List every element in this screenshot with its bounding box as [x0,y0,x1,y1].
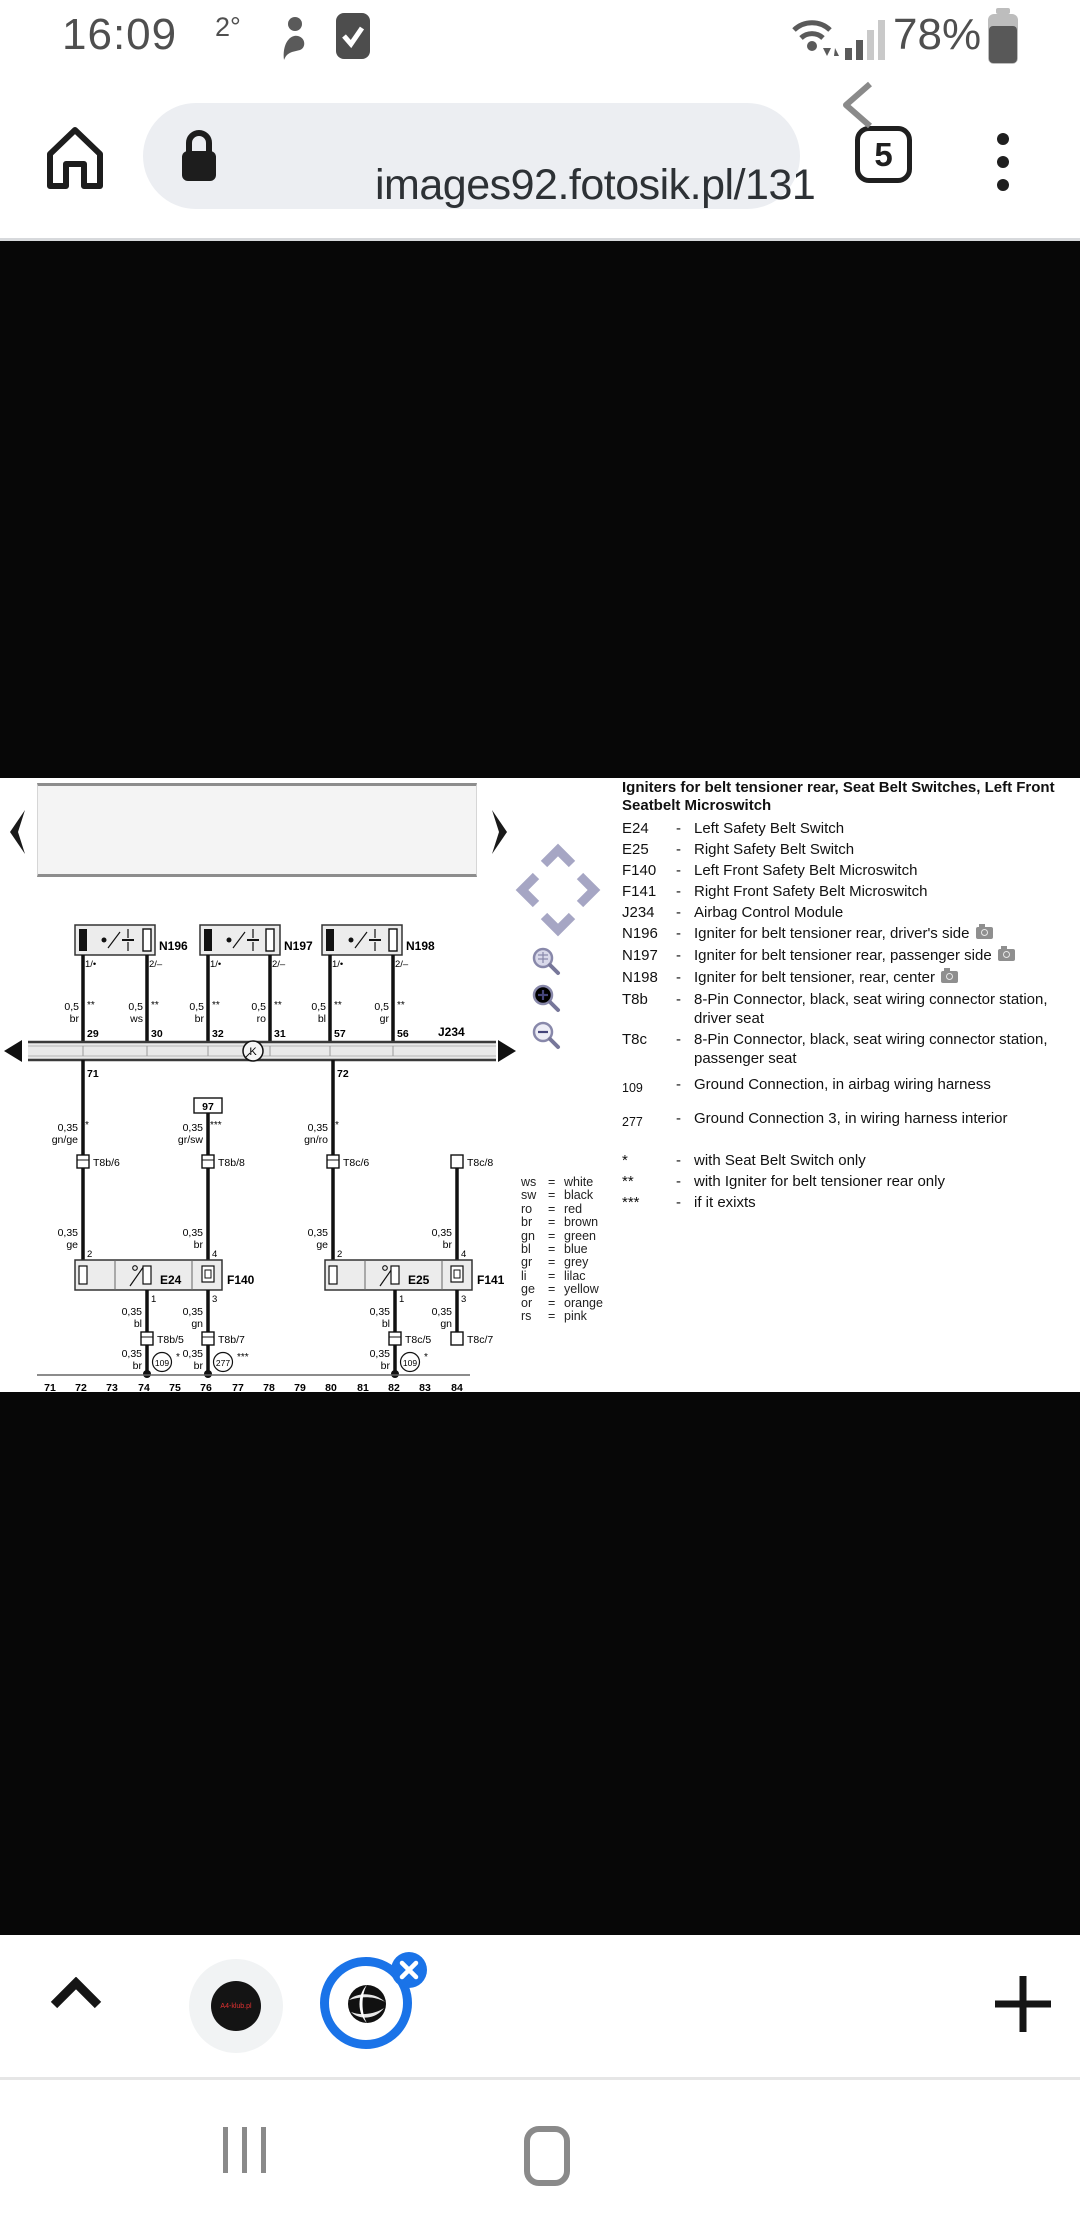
component-code: T8b [622,990,676,1028]
legend-item: N198-Igniter for belt tensioner, rear, c… [622,968,1080,987]
webpage-content: N196 1/• 2/– 0,5 ** br 29 0,5 ** ws 30 N… [0,778,1080,1392]
wire-note-label: ** [397,1000,405,1011]
wire-note-label: * [335,1120,339,1131]
component-code: F140 [622,861,676,880]
wire-size-label: 0,35 [370,1306,391,1318]
pin-label: 4 [212,1249,217,1260]
igniter-n198: N198 1/• 2/– 0,5 ** bl 57 0,5 ** gr 56 [311,925,435,1042]
connector-label: T8b/7 [218,1334,245,1346]
component-code: N197 [622,946,676,965]
home-nav-button[interactable] [524,2126,570,2186]
pin-label: 2/– [272,959,286,970]
wire-size-label: 0,35 [432,1306,453,1318]
connector-label: T8b/5 [157,1334,184,1346]
pin-label: 2 [337,1249,342,1260]
wire-color-label: gn [191,1318,203,1330]
wire-size-label: 0,35 [308,1122,329,1134]
bus-pin-label: 30 [151,1028,163,1040]
ground-label: 277 [216,1358,230,1368]
pan-right-button[interactable] [580,876,594,904]
active-site-bubble[interactable] [320,1957,412,2049]
connector-label: T8b/6 [93,1157,120,1169]
wire-color-label: br [194,1360,204,1372]
wire-color-row: ge=yellow [521,1283,603,1296]
gallery-prev-arrow[interactable] [8,810,26,854]
component-desc: Left Front Safety Belt Microswitch [694,862,917,879]
wire-size-label: 0,5 [311,1001,326,1013]
igniter-n196: N196 1/• 2/– 0,5 ** br 29 0,5 ** ws 30 [64,925,188,1042]
igniter-n197: N197 1/• 2/– 0,5 ** br 32 0,5 ** ro 31 [189,925,313,1042]
wire-color-label: gn/ge [52,1134,78,1146]
component-label: N197 [284,939,313,953]
menu-dot [997,179,1009,191]
wire-color-label: bl [382,1318,390,1330]
wire-size-label: 0,5 [128,1001,143,1013]
pin-label: 1/• [210,959,221,970]
pin-label: 1 [399,1294,404,1305]
wire-note-label: * [85,1120,89,1131]
wire-color-label: br [381,1360,391,1372]
wire-color-label: ws [129,1013,143,1025]
connector-label: T8b/8 [218,1157,245,1169]
footnote-symbol: ** [622,1172,676,1191]
globe-icon [347,1984,387,2024]
legend-item: N196-Igniter for belt tensioner rear, dr… [622,924,1080,943]
url-bar[interactable]: images92.fotosik.pl/131 [143,103,800,209]
wire-color-label: br [133,1360,143,1372]
connector-label: T8c/7 [467,1334,493,1346]
signal-bars-icon [845,10,889,60]
wire-size-label: 0,35 [183,1227,204,1239]
pin-label: 1/• [85,959,96,970]
footnote-desc: with Igniter for belt tensioner rear onl… [694,1173,945,1190]
tab-switcher-button[interactable]: 5 [855,126,912,183]
legend-item: *-with Seat Belt Switch only [622,1151,1080,1170]
diagram-legend: Igniters for belt tensioner rear, Seat B… [622,779,1080,1214]
camera-icon[interactable] [998,949,1015,961]
component-code: E25 [622,840,676,859]
system-navigation-bar [0,2080,1080,2220]
component-desc: Right Safety Belt Switch [694,841,854,858]
page-background-bottom [0,1392,1080,1935]
pin-label: 3 [461,1294,466,1305]
menu-dot [997,133,1009,145]
ground-label: 109 [403,1358,417,1368]
wire-size-label: 0,35 [122,1348,143,1360]
wire-color-row: br=brown [521,1216,603,1229]
wifi-icon [790,12,842,60]
wire-note-label: ** [274,1000,282,1011]
component-label: F140 [227,1273,255,1287]
k-symbol-label: K [249,1046,257,1058]
bus-pin-label: 29 [87,1028,99,1040]
back-button[interactable] [838,81,876,129]
recent-site-bubble[interactable]: A4-klub.pl [189,1959,283,2053]
wire-color-label: br [195,1013,205,1025]
temperature: 2° [215,12,241,43]
wire-size-label: 0,5 [64,1001,79,1013]
camera-icon[interactable] [941,971,958,983]
component-desc: Left Safety Belt Switch [694,820,844,837]
wire-note-label: * [176,1352,180,1363]
recents-button[interactable] [223,2127,280,2178]
wire-size-label: 0,35 [183,1306,204,1318]
wire-note-label: *** [237,1352,249,1363]
component-code: J234 [622,903,676,922]
wire-color-label: ge [66,1239,78,1251]
switch-unit-e25-f141: 0,35 ge 2 0,35 br 4 E25 F141 1 0,35 bl T… [308,1227,505,1378]
connector-label: T8c/8 [467,1157,493,1169]
camera-icon[interactable] [976,927,993,939]
page-background-top [0,241,1080,778]
legend-item: T8c-8-Pin Connector, black, seat wiring … [622,1030,1080,1068]
component-code: 277 [622,1109,676,1132]
switch-unit-e24-f140: 0,35 ge 2 0,35 br 4 E24 F140 1 0,35 bl T… [58,1227,255,1378]
control-module-bus: K J234 71 72 [4,1025,516,1080]
legend-item: N197-Igniter for belt tensioner rear, pa… [622,946,1080,965]
wiring-diagram-image: N196 1/• 2/– 0,5 ** br 29 0,5 ** ws 30 N… [0,895,520,1395]
wire-color-row: gn=green [521,1230,603,1243]
wire-note-label: ** [334,1000,342,1011]
bus-pin-label: 57 [334,1028,346,1040]
wire-color-label: bl [134,1318,142,1330]
component-code: 109 [622,1075,676,1098]
wire-color-label: br [70,1013,80,1025]
legend-item: F141-Right Front Safety Belt Microswitch [622,882,1080,901]
wire-color-row: li=lilac [521,1270,603,1283]
pan-up-button[interactable] [544,850,572,864]
component-desc: Right Front Safety Belt Microswitch [694,883,927,900]
wire-size-label: 0,5 [374,1001,389,1013]
wire-color-row: bl=blue [521,1243,603,1256]
pin-label: 2/– [395,959,409,970]
wire-size-label: 0,35 [183,1348,204,1360]
component-desc: Ground Connection 3, in wiring harness i… [694,1110,1008,1127]
legend-item: 109-Ground Connection, in airbag wiring … [622,1075,1080,1098]
component-code: N196 [622,924,676,943]
wire-color-row: sw=black [521,1189,603,1202]
wire-color-row: ws=white [521,1176,603,1189]
legend-item: **-with Igniter for belt tensioner rear … [622,1172,1080,1191]
zoom-in-button[interactable] [534,986,558,1010]
component-label: F141 [477,1273,505,1287]
browser-toolbar: images92.fotosik.pl/131 5 [0,70,1080,238]
component-label: E25 [408,1273,430,1287]
image-viewer-tools [500,830,640,1060]
legend-item: F140-Left Front Safety Belt Microswitch [622,861,1080,880]
wire-size-label: 0,35 [308,1227,329,1239]
wire-size-label: 0,35 [122,1306,143,1318]
checkbox-notification-icon [335,12,371,60]
legend-title: Igniters for belt tensioner rear, Seat B… [622,779,1080,815]
ground-label: 109 [155,1358,169,1368]
battery-percent: 78% [893,10,981,60]
wire-size-label: 0,35 [58,1227,79,1239]
wire-color-label: bl [318,1013,326,1025]
bus-pin-label: 72 [337,1068,349,1080]
component-code: T8c [622,1030,676,1068]
wire-size-label: 0,35 [370,1348,391,1360]
legend-item: E25-Right Safety Belt Switch [622,840,1080,859]
component-desc: 8-Pin Connector, black, seat wiring conn… [694,991,1048,1027]
footnote-desc: with Seat Belt Switch only [694,1152,866,1169]
browser-bottom-sheet: A4-klub.pl [0,1935,1080,2077]
bus-pin-label: 31 [274,1028,286,1040]
wire-size-label: 0,35 [183,1122,204,1134]
component-code: N198 [622,968,676,987]
component-code: F141 [622,882,676,901]
close-tab-badge[interactable] [391,1952,427,1988]
home-button[interactable] [44,124,106,192]
wire-note-label: *** [210,1120,222,1131]
component-code: E24 [622,819,676,838]
pin-label: 3 [212,1294,217,1305]
wire-color-label: br [194,1239,204,1251]
component-desc: Igniter for belt tensioner rear, driver'… [694,925,970,942]
code-97-label: 97 [202,1101,214,1113]
wire-size-label: 0,35 [432,1227,453,1239]
browser-menu-button[interactable] [997,122,1009,202]
url-text: images92.fotosik.pl/131 [375,161,815,210]
new-tab-button[interactable] [993,1974,1053,2034]
empty-thumbnail-strip [37,783,477,877]
wire-color-label: gr [380,1013,390,1025]
bus-pin-label: 56 [397,1028,409,1040]
zoom-out-button[interactable] [534,1023,558,1047]
wire-color-label: ro [257,1013,266,1025]
pin-label: 2 [87,1249,92,1260]
legend-item: T8b-8-Pin Connector, black, seat wiring … [622,990,1080,1028]
component-desc: Ground Connection, in airbag wiring harn… [694,1076,991,1093]
legend-item: E24-Left Safety Belt Switch [622,819,1080,838]
pin-label: 4 [461,1249,466,1260]
wire-color-label: ge [316,1239,328,1251]
clock: 16:09 [62,10,177,60]
wire-note-label: * [424,1352,428,1363]
close-icon [399,1960,419,1980]
connector-label: T8c/6 [343,1157,369,1169]
wire-note-label: ** [151,1000,159,1011]
expand-sheet-button[interactable] [46,1977,106,2009]
wire-color-row: or=orange [521,1297,603,1310]
site-favicon: A4-klub.pl [211,1981,261,2031]
pin-label: 1/• [332,959,343,970]
component-desc: Igniter for belt tensioner rear, passeng… [694,947,992,964]
person-notification-icon [276,16,310,60]
bus-pin-label: 32 [212,1028,224,1040]
zoom-reset-button[interactable] [534,949,558,973]
pan-left-button[interactable] [522,876,536,904]
menu-dot [997,156,1009,168]
footnote-desc: if it exixts [694,1194,756,1211]
bus-pin-label: 71 [87,1068,99,1080]
pan-down-button[interactable] [544,916,572,930]
wire-color-row: ro=red [521,1203,603,1216]
wire-color-row: gr=grey [521,1256,603,1269]
pin-label: 2/– [149,959,163,970]
wire-size-label: 0,5 [189,1001,204,1013]
bus-continuation-arrow-left [4,1040,22,1062]
tab-count: 5 [874,136,892,174]
wire-color-label: gn [440,1318,452,1330]
component-desc: Igniter for belt tensioner, rear, center [694,969,935,986]
legend-item: J234-Airbag Control Module [622,903,1080,922]
lock-icon [177,129,221,183]
connector-label: T8c/5 [405,1334,431,1346]
wire-note-label: ** [87,1000,95,1011]
component-label: J234 [438,1025,465,1039]
footnote-symbol: * [622,1151,676,1170]
component-label: E24 [160,1273,182,1287]
wire-color-label: gn/ro [304,1134,328,1146]
wire-note-label: ** [212,1000,220,1011]
wire-color-key: ws=white sw=black ro=red br=brown gn=gre… [521,1176,603,1323]
wire-color-label: gr/sw [178,1134,204,1146]
component-desc: 8-Pin Connector, black, seat wiring conn… [694,1031,1048,1067]
battery-icon [988,8,1018,64]
component-label: N196 [159,939,188,953]
seat-connector-wires: 0,35 * gn/ge T8b/6 97 0,35 *** gr/sw T8b… [52,1060,494,1260]
footnote-symbol: *** [622,1193,676,1212]
pin-label: 1 [151,1294,156,1305]
wire-size-label: 0,5 [251,1001,266,1013]
wire-size-label: 0,35 [58,1122,79,1134]
component-desc: Airbag Control Module [694,904,843,921]
status-bar: 16:09 2° 78% [0,0,1080,70]
legend-item: 277-Ground Connection 3, in wiring harne… [622,1109,1080,1132]
component-label: N198 [406,939,435,953]
wire-color-label: br [443,1239,453,1251]
wire-color-row: rs=pink [521,1310,603,1323]
legend-item: ***-if it exixts [622,1193,1080,1212]
